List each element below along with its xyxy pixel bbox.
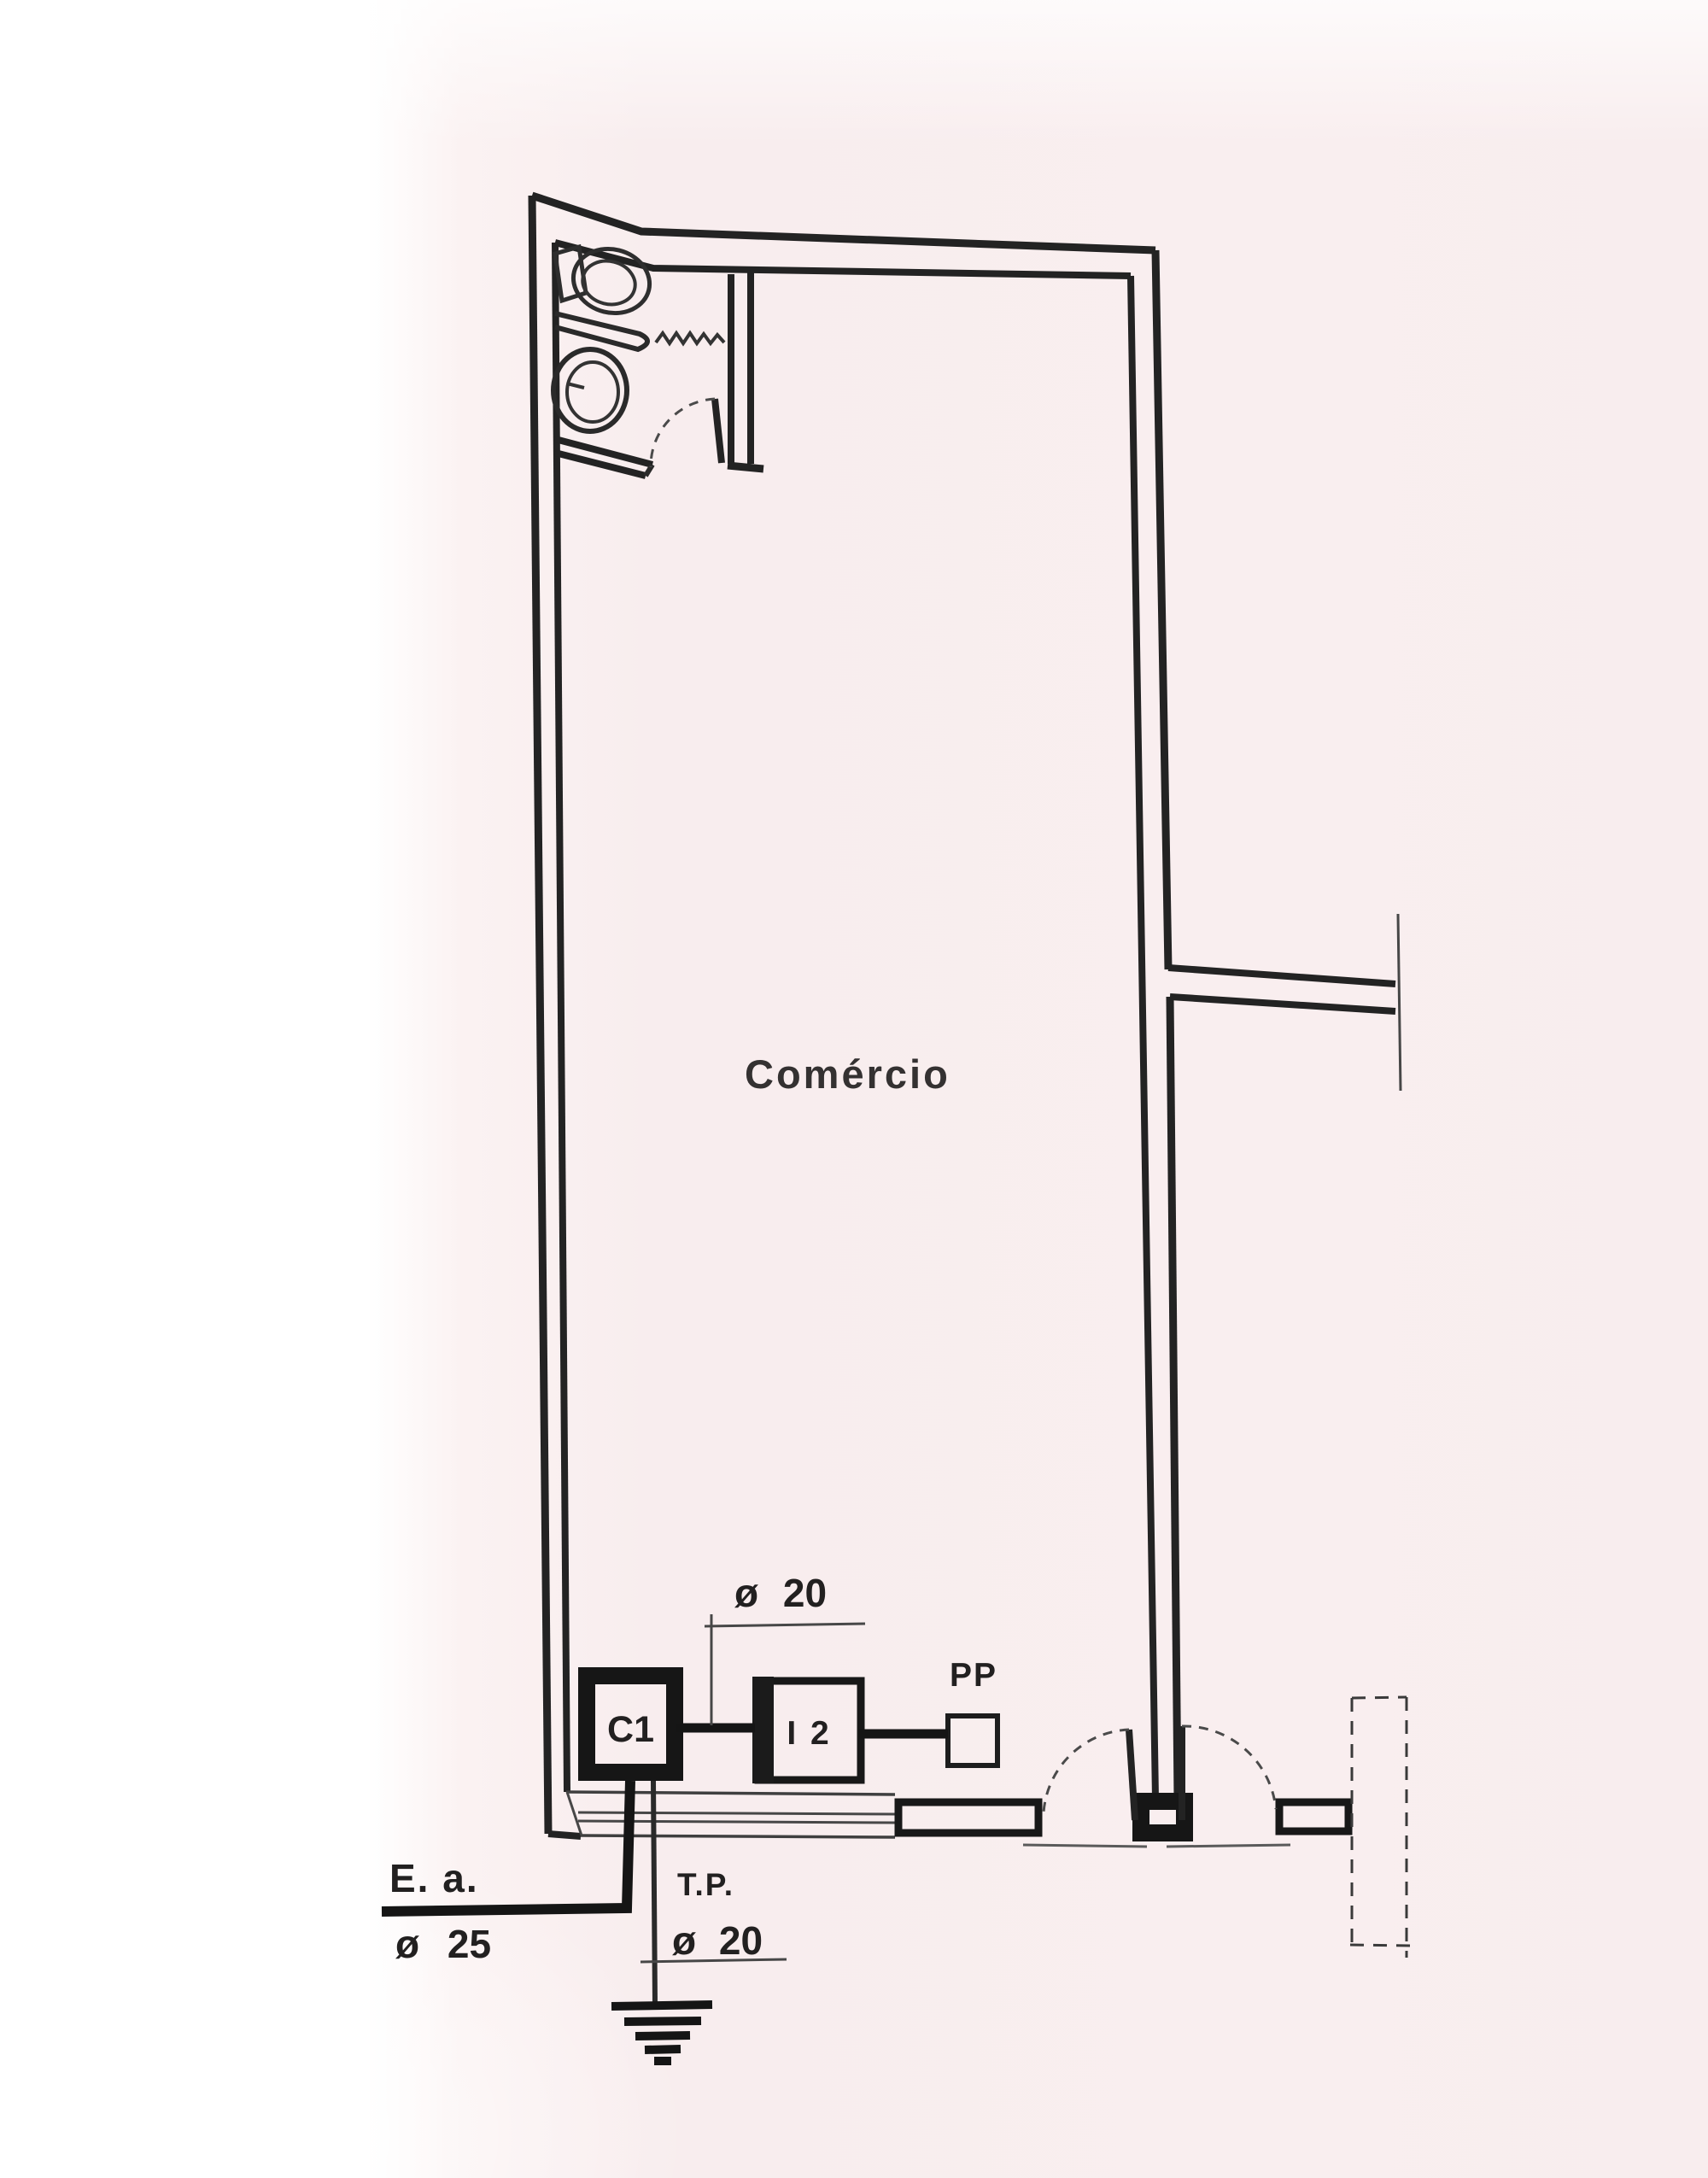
bathroom — [553, 241, 763, 476]
threshold-line-right — [1167, 1845, 1290, 1847]
door-center-pier — [1141, 1801, 1184, 1833]
storefront-band-top-line — [566, 1792, 895, 1795]
pp-label: PP — [950, 1657, 997, 1695]
c1-box-label: C1 — [578, 1709, 683, 1751]
fixture-divider-wall — [555, 313, 647, 349]
sink-tap-mark — [567, 383, 584, 388]
tp-label: T.P. — [677, 1867, 734, 1903]
top-wall-outer-line — [532, 196, 1155, 250]
shop-window-sill — [898, 1802, 1038, 1833]
branch-wall-top-line — [1168, 968, 1395, 984]
dashed-projection-outline — [1350, 1697, 1411, 1958]
tp-diameter-label: ø 20 — [672, 1917, 763, 1964]
dimension-line-o20 — [705, 1624, 865, 1626]
right-branch-wall — [1168, 914, 1401, 1091]
door-right-pier — [1279, 1802, 1348, 1831]
ground-bar-2 — [624, 2021, 701, 2022]
exterior-walls — [532, 196, 1178, 1836]
sink-basin-inner — [567, 362, 618, 422]
branch-wall-end-mark — [1398, 914, 1401, 1091]
left-wall-inner-line — [555, 243, 567, 1792]
bathroom-bottom-wall-outer — [555, 439, 652, 465]
left-wall-bottom-cap — [548, 1834, 581, 1836]
left-wall-outer-line — [532, 196, 548, 1834]
wavy-vent-symbol — [656, 333, 724, 343]
conduit-diameter-label-top: ø 20 — [734, 1570, 827, 1616]
pp-point-box — [948, 1716, 997, 1765]
ground-conduit-line — [653, 1781, 655, 2005]
dashed-rect-top — [1352, 1697, 1407, 1698]
bathroom-door-leaf — [715, 399, 722, 463]
entrance-right-door-swing-arc — [1182, 1726, 1276, 1809]
right-wall-outer-lower-line — [1170, 997, 1178, 1799]
earth-ground-symbol — [611, 2005, 712, 2061]
toilet-tank — [555, 247, 586, 301]
branch-wall-bottom-line — [1170, 997, 1395, 1011]
service-entrance-diameter-label: ø 25 — [395, 1921, 491, 1967]
threshold-line-left — [1023, 1845, 1147, 1847]
entrance-left-door-swing-arc — [1044, 1730, 1129, 1812]
right-wall-outer-upper-line — [1155, 250, 1168, 969]
ground-bar-4 — [645, 2049, 681, 2050]
storefront — [566, 1726, 1348, 1847]
partition-wall-end-cap — [728, 465, 763, 469]
ground-bar-1 — [611, 2005, 712, 2006]
i2-box-label: I 2 — [754, 1715, 864, 1753]
ground-bar-3 — [635, 2035, 690, 2036]
right-wall-inner-line — [1131, 276, 1155, 1799]
service-entrance-label: E. a. — [389, 1855, 479, 1901]
electrical-symbols — [382, 1614, 997, 2061]
entrance-left-door-leaf — [1129, 1730, 1135, 1820]
room-label: Comércio — [745, 1051, 951, 1098]
scanned-floor-plan-page: Comércio ø 20 PP C1 I 2 E. a. ø 25 T.P. … — [0, 0, 1708, 2178]
bathroom-door-swing-arc — [651, 399, 715, 467]
dashed-rect-bottom — [1350, 1945, 1411, 1946]
